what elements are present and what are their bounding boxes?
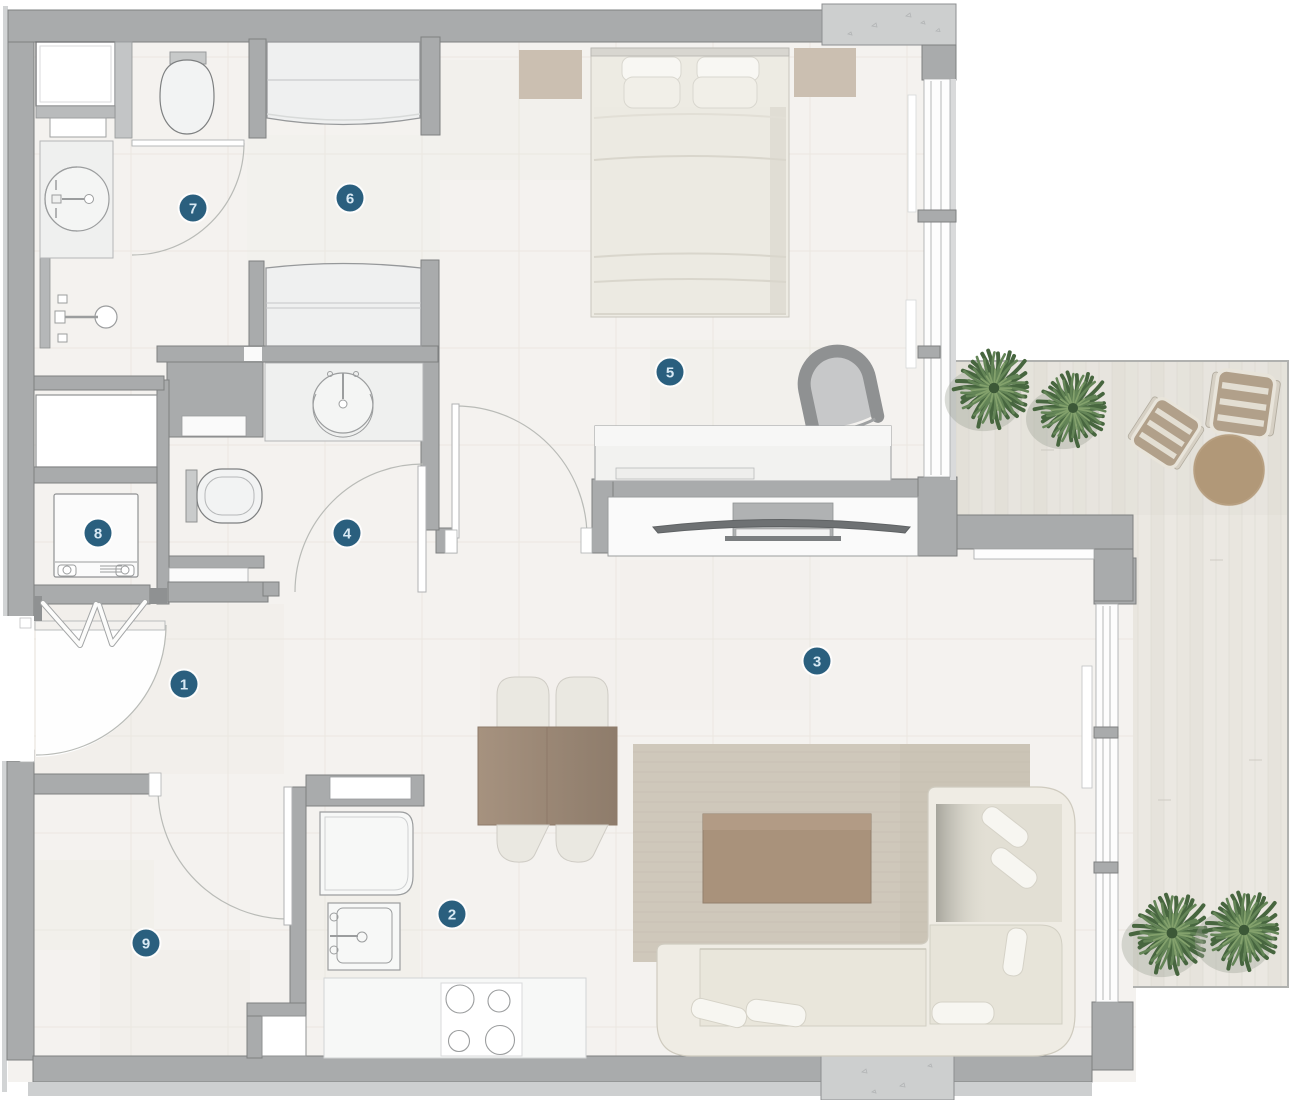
svg-text:2: 2 xyxy=(448,906,456,923)
svg-text:9: 9 xyxy=(142,935,150,952)
svg-text:6: 6 xyxy=(346,190,354,207)
svg-text:5: 5 xyxy=(666,364,674,381)
svg-text:7: 7 xyxy=(189,200,197,217)
svg-text:1: 1 xyxy=(180,676,188,693)
svg-text:8: 8 xyxy=(94,525,102,542)
svg-text:4: 4 xyxy=(343,525,352,542)
svg-text:3: 3 xyxy=(813,653,821,670)
